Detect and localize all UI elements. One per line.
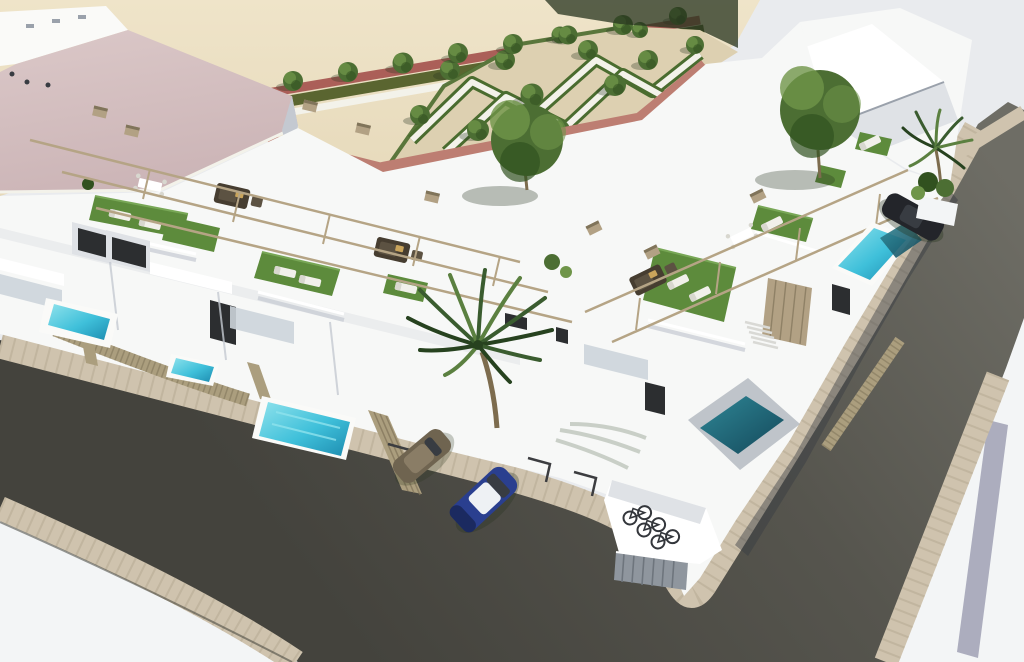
roof-vent — [52, 19, 60, 23]
terrace-plant — [560, 266, 572, 278]
planter-bush — [936, 179, 954, 197]
render-canvas — [0, 0, 1024, 662]
roof-vent — [26, 24, 34, 28]
window — [832, 284, 850, 315]
terrace-plant — [544, 254, 560, 270]
aerial-render — [0, 0, 1024, 662]
window — [645, 382, 665, 415]
planter-bush — [911, 186, 925, 200]
roof-vent — [25, 80, 30, 85]
roof-vent — [78, 15, 86, 19]
roof-vent — [10, 72, 15, 77]
roof-vent — [46, 83, 51, 88]
